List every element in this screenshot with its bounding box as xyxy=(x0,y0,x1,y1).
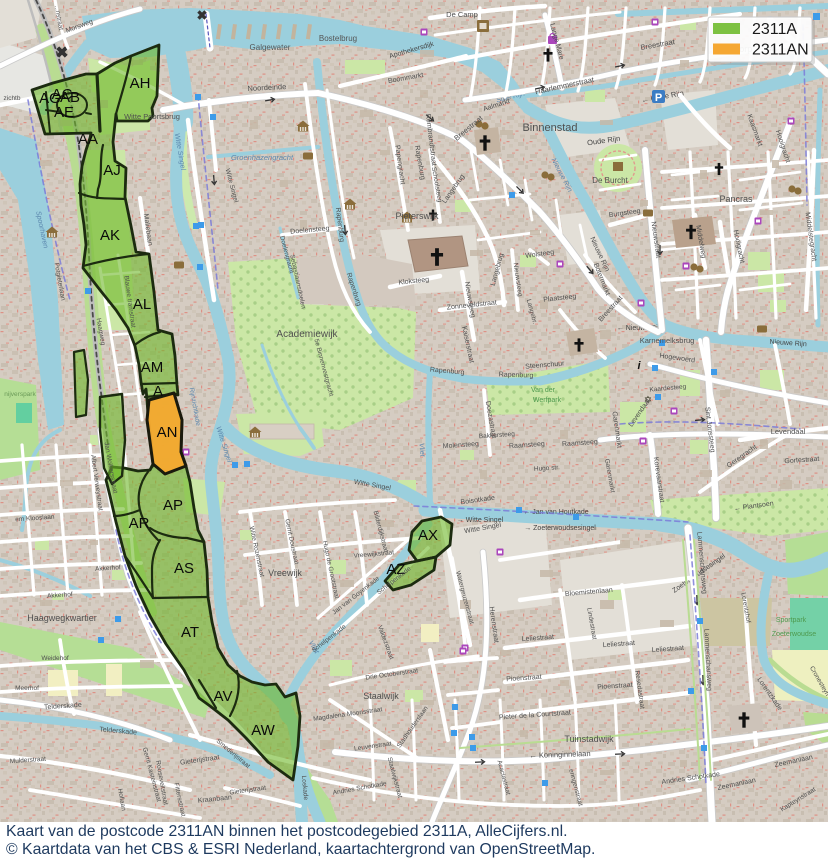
svg-text:Vliet: Vliet xyxy=(417,443,425,458)
svg-text:Rapenburg: Rapenburg xyxy=(499,371,534,379)
svg-text:AW: AW xyxy=(251,722,275,739)
svg-text:Galgewater: Galgewater xyxy=(250,43,291,52)
svg-text:Tuinstadwijk: Tuinstadwijk xyxy=(564,734,614,744)
svg-text:AS: AS xyxy=(174,560,194,577)
svg-text:Staalwijk: Staalwijk xyxy=(363,691,399,701)
svg-text:AP: AP xyxy=(163,497,183,514)
svg-text:Weidehof: Weidehof xyxy=(41,655,69,662)
svg-text:Pieterswijk: Pieterswijk xyxy=(395,211,439,221)
svg-text:AN: AN xyxy=(157,424,178,441)
svg-text:Pancras: Pancras xyxy=(719,194,753,204)
svg-text:Van der: Van der xyxy=(531,387,556,394)
svg-text:Karnemelksbrug: Karnemelksbrug xyxy=(640,336,695,345)
svg-text:nijverspark: nijverspark xyxy=(4,391,36,398)
svg-text:AC: AC xyxy=(52,86,73,103)
svg-text:2311AN: 2311AN xyxy=(752,42,809,59)
svg-text:Binnenstad: Binnenstad xyxy=(522,122,577,134)
svg-text:A: A xyxy=(153,383,163,400)
svg-text:Vreewijk: Vreewijk xyxy=(268,568,302,578)
svg-text:Sportpark: Sportpark xyxy=(776,617,807,624)
svg-text:Haagwegkwartier: Haagwegkwartier xyxy=(27,613,97,623)
svg-text:AV: AV xyxy=(214,688,233,705)
svg-text:AH: AH xyxy=(130,75,151,92)
svg-text:→ Zoeterwoudsesingel: → Zoeterwoudsesingel xyxy=(524,525,596,532)
svg-text:AX: AX xyxy=(418,527,438,544)
svg-text:Meerhof: Meerhof xyxy=(15,685,39,692)
svg-text:AJ: AJ xyxy=(103,162,121,179)
svg-text:AA: AA xyxy=(78,131,98,148)
svg-text:2311A: 2311A xyxy=(752,21,797,38)
svg-text:AE: AE xyxy=(54,104,74,121)
svg-text:Zoeterwoudse: Zoeterwoudse xyxy=(772,631,816,638)
svg-text:Werfpark: Werfpark xyxy=(533,397,562,404)
svg-text:AL: AL xyxy=(133,296,151,313)
svg-text:AR: AR xyxy=(129,515,150,532)
svg-text:Bostelbrug: Bostelbrug xyxy=(319,34,357,43)
svg-text:Levendaal: Levendaal xyxy=(771,427,806,436)
svg-text:De Camp: De Camp xyxy=(446,10,478,19)
svg-text:AK: AK xyxy=(100,227,120,244)
svg-text:zichtb: zichtb xyxy=(4,95,21,102)
svg-text:AM: AM xyxy=(141,359,164,376)
svg-text:P: P xyxy=(655,92,662,104)
svg-text:De Burcht: De Burcht xyxy=(592,176,628,185)
svg-text:Academiewijk: Academiewijk xyxy=(276,329,338,340)
svg-text:AT: AT xyxy=(181,624,199,641)
svg-text:Groenhazengracht: Groenhazengracht xyxy=(231,153,294,162)
svg-text:Witte Poortsbrug: Witte Poortsbrug xyxy=(124,112,180,121)
